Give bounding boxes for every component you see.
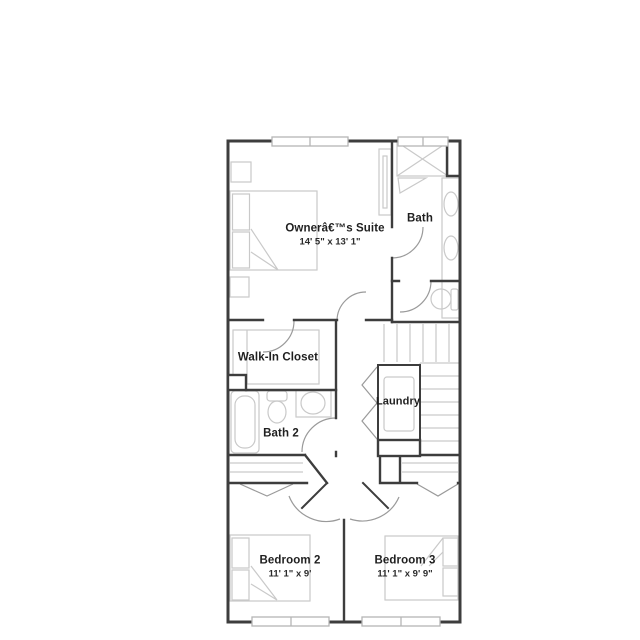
window-bedroom-2: [252, 617, 329, 626]
shower: [397, 142, 448, 193]
door-swing-bedroom-2: [289, 496, 340, 521]
bedroom-3-label: Bedroom 3: [375, 555, 436, 567]
bifold-door-closet-bedroom-3: [417, 484, 458, 496]
closet-shelves-bedroom-2: [230, 463, 303, 472]
stairs: [384, 324, 459, 454]
toilet-bath-2: [267, 391, 287, 423]
bathtub: [231, 391, 259, 453]
window-owners-suite: [272, 137, 348, 146]
windows-layer: [252, 137, 448, 626]
closet-shelves-bedroom-3: [402, 463, 458, 472]
sink-bath-2: [296, 390, 331, 417]
door-swing-bath-2: [302, 418, 336, 452]
laundry-label: Laundry: [376, 397, 420, 408]
door-swing-owners-suite: [337, 292, 366, 321]
window-bedroom-3: [362, 617, 440, 626]
window-bath: [398, 137, 448, 146]
bath-2-label: Bath 2: [263, 428, 299, 440]
nightstand-top: [231, 162, 251, 182]
bath-label: Bath: [407, 213, 433, 225]
door-swing-toilet-room: [400, 281, 431, 312]
walk-in-closet-label: Walk-In Closet: [238, 352, 318, 364]
bedroom-2-dims: 11' 1" x 9': [269, 569, 312, 579]
wardrobe: [379, 149, 391, 215]
bifold-door-laundry: [362, 367, 377, 439]
floor-plan-canvas: Ownerâ€™s Suite 14' 5" x 13' 1" Bath Wal…: [0, 0, 640, 640]
bifold-door-closet-bedroom-2: [240, 484, 293, 496]
door-swing-bedroom-3: [350, 497, 399, 521]
toilet-bath: [431, 289, 458, 310]
door-swing-bath: [392, 227, 423, 258]
bedroom-3-dims: 11' 1" x 9' 9": [377, 569, 432, 579]
owners-suite-dims: 14' 5" x 13' 1": [299, 237, 360, 247]
floor-plan-drawing: [0, 0, 640, 640]
bedroom-2-label: Bedroom 2: [260, 555, 321, 567]
doors-layer: [240, 227, 458, 521]
owners-suite-label: Ownerâ€™s Suite: [285, 223, 384, 235]
nightstand-bottom: [230, 277, 249, 297]
door-swing-walk-in-closet: [263, 321, 294, 352]
